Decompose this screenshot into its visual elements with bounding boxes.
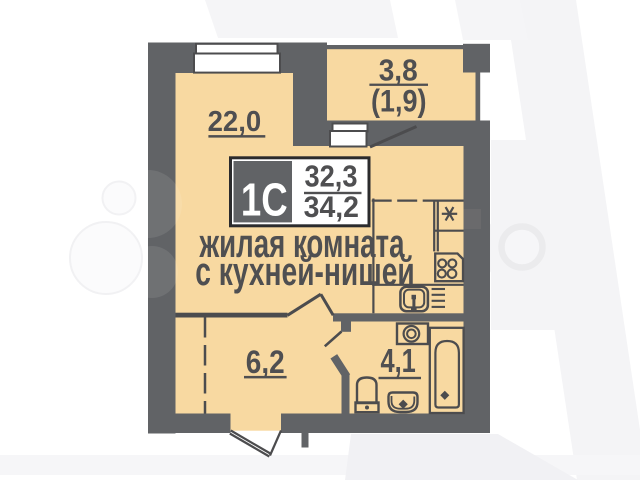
svg-text:(1,9): (1,9) [371,84,427,119]
svg-text:4,1: 4,1 [380,342,415,379]
svg-text:34,2: 34,2 [304,191,359,224]
svg-text:32,3: 32,3 [305,159,358,194]
svg-text:3,8: 3,8 [379,53,418,88]
svg-text:1С: 1С [241,173,288,225]
svg-text:22,0: 22,0 [208,106,262,138]
svg-text:с кухней-нишей: с кухней-нишей [195,250,414,294]
svg-text:6,2: 6,2 [246,344,285,380]
